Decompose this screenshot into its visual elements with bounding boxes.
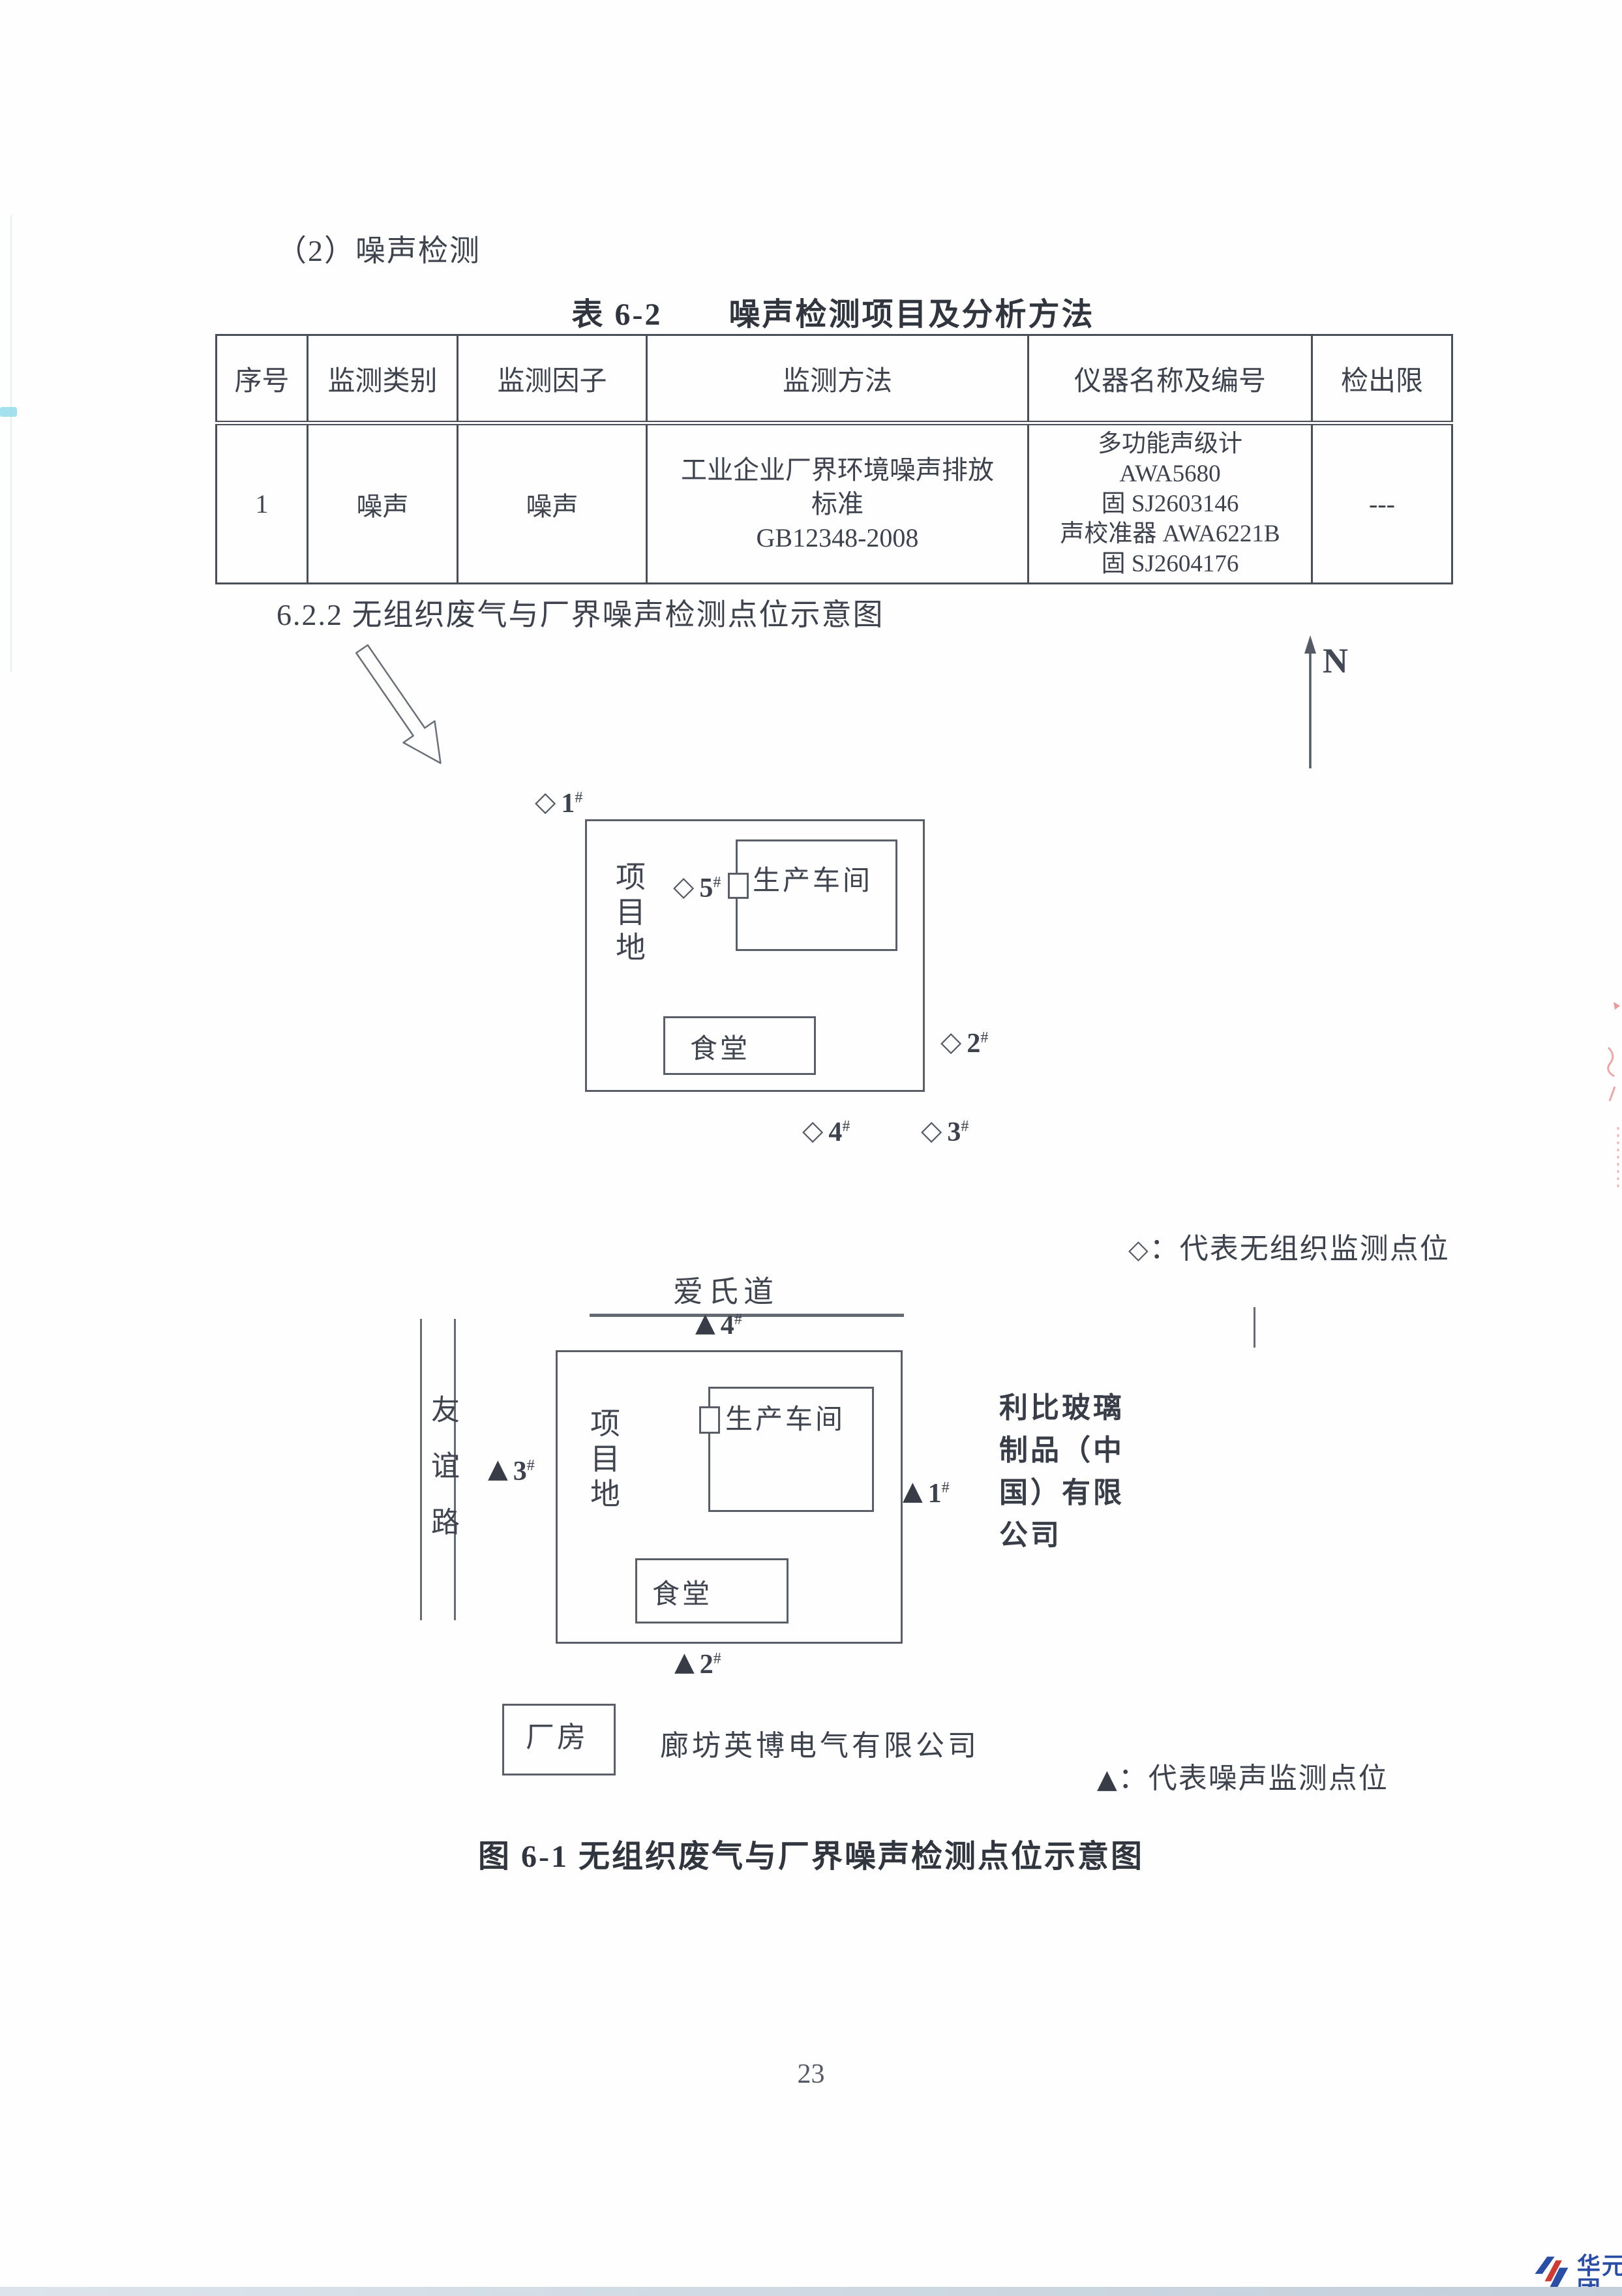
point-label: 5# [699, 873, 721, 904]
scan-artifact-pink-marks [1598, 997, 1622, 1199]
noise-point-2: ▲ 2# [674, 1649, 721, 1680]
north-arrow-icon [1297, 634, 1325, 774]
cell-method: 工业企业厂界环境噪声排放 标准 GB12348-2008 [647, 423, 1029, 584]
workshop-door-icon [728, 873, 749, 899]
unorganized-point-1: ◇ 1# [535, 788, 582, 819]
diamond-icon: ◇ [921, 1117, 942, 1144]
diamond-icon: ◇ [673, 873, 694, 900]
unorganized-point-4: ◇ 4# [802, 1117, 850, 1148]
legend-noise-points: ▲：代表噪声监测点位 [1097, 1755, 1389, 1796]
point-label: 4# [721, 1310, 742, 1341]
col-header-index: 序号 [217, 335, 308, 423]
unorganized-point-2: ◇ 2# [940, 1028, 988, 1059]
workshop-label-1: 生产车间 [753, 858, 873, 898]
workshop-label-2: 生产车间 [725, 1397, 845, 1437]
figure-caption: 图 6-1 无组织废气与厂界噪声检测点位示意图 [0, 1830, 1622, 1876]
diagonal-arrow-icon [329, 636, 453, 796]
road-label-left: 友谊路 [421, 1395, 463, 1563]
legend-tick-line [1254, 1307, 1255, 1348]
cell-detection-limit: --- [1312, 423, 1452, 584]
cell-instrument: 多功能声级计 AWA5680 固 SJ2603146 声校准器 AWA6221B… [1029, 423, 1312, 584]
col-header-instrument: 仪器名称及编号 [1029, 335, 1312, 423]
cell-index: 1 [217, 423, 308, 584]
point-label: 2# [700, 1649, 721, 1680]
subsection-heading: 6.2.2 无组织废气与厂界噪声检测点位示意图 [277, 591, 884, 634]
site-label-2: 项目地 [581, 1408, 624, 1513]
scan-artifact-cyan-tick [0, 407, 17, 417]
table-row: 1 噪声 噪声 工业企业厂界环境噪声排放 标准 GB12348-2008 多功能… [217, 423, 1452, 584]
canteen-label-2: 食堂 [652, 1572, 712, 1612]
diamond-icon: ◇ [1128, 1235, 1150, 1265]
noise-point-1: ▲ 1# [903, 1478, 950, 1509]
col-header-category: 监测类别 [308, 335, 458, 423]
col-header-detection-limit: 检出限 [1312, 335, 1452, 423]
noise-section-heading: （2）噪声检测 [277, 227, 481, 270]
triangle-icon: ▲ [488, 1456, 508, 1482]
cell-category: 噪声 [308, 423, 458, 584]
scan-artifact-bottom-band [0, 2287, 1622, 2296]
diamond-icon: ◇ [940, 1028, 961, 1055]
road-line-top [590, 1314, 904, 1317]
point-label: 1# [928, 1478, 950, 1509]
triangle-icon: ▲ [1097, 1764, 1119, 1794]
cell-factor: 噪声 [458, 423, 647, 584]
triangle-icon: ▲ [903, 1478, 923, 1504]
unorganized-point-3: ◇ 3# [921, 1117, 969, 1148]
neighbor-company-bottom: 廊坊英博电气有限公司 [660, 1722, 980, 1764]
col-header-method: 监测方法 [647, 335, 1029, 423]
road-label-top: 爱氏道 [673, 1268, 779, 1311]
point-label: 4# [828, 1117, 850, 1148]
factory-label: 厂房 [502, 1704, 612, 1772]
point-label: 1# [561, 788, 582, 819]
table-header-row: 序号 监测类别 监测因子 监测方法 仪器名称及编号 检出限 [217, 335, 1452, 423]
site-label-1: 项目地 [607, 861, 650, 967]
point-label: 2# [967, 1028, 988, 1059]
unorganized-point-5: ◇ 5# [673, 873, 721, 904]
page-number: 23 [0, 2059, 1622, 2090]
point-label: 3# [947, 1117, 969, 1148]
legend-unorganized-points: ◇：代表无组织监测点位 [1128, 1225, 1450, 1267]
compass-north-label: N [1323, 641, 1348, 681]
diamond-icon: ◇ [535, 788, 556, 815]
triangle-icon: ▲ [695, 1310, 715, 1336]
triangle-icon: ▲ [674, 1649, 695, 1675]
document-page: （2）噪声检测 表 6-2 噪声检测项目及分析方法 序号 监测类别 监测因子 监… [0, 0, 1622, 2296]
neighbor-company-right: 利比玻璃制品（中国）有限公司 [999, 1387, 1132, 1556]
workshop-door-icon [699, 1406, 720, 1434]
noise-point-4: ▲ 4# [695, 1310, 742, 1341]
noise-monitoring-table: 序号 监测类别 监测因子 监测方法 仪器名称及编号 检出限 1 噪声 噪声 工业… [215, 334, 1453, 584]
col-header-factor: 监测因子 [458, 335, 647, 423]
table-title: 表 6-2 噪声检测项目及分析方法 [215, 288, 1451, 334]
canteen-label-1: 食堂 [690, 1027, 750, 1066]
point-label: 3# [513, 1456, 535, 1487]
scan-artifact-cyan-line [10, 215, 12, 672]
noise-point-3: ▲ 3# [488, 1456, 535, 1487]
diamond-icon: ◇ [802, 1117, 823, 1144]
